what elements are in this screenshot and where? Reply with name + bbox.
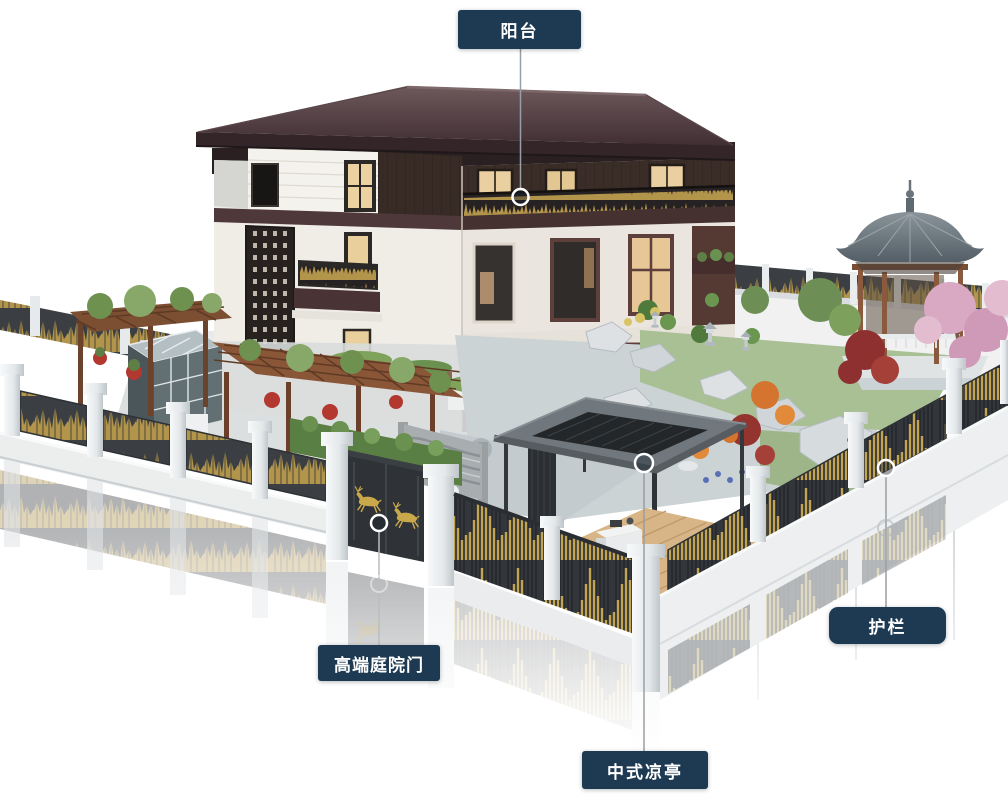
callout-label-pavilion-text: 中式凉亭 (607, 758, 683, 783)
callout-label-guardrail-text: 护栏 (869, 613, 907, 638)
callout-marker-gate[interactable] (371, 515, 387, 531)
hip-roof (196, 86, 735, 160)
dark-window (252, 164, 278, 206)
callout-label-balcony-text: 阳台 (501, 17, 539, 42)
lit-window-3f-left (344, 160, 376, 212)
callout-label-balcony[interactable]: 阳台 (458, 10, 581, 49)
callout-label-courtyard-gate-text: 高端庭院门 (334, 651, 424, 676)
callout-marker-guardrail[interactable] (878, 460, 894, 476)
lattice-screen (246, 226, 294, 354)
callout-marker-pavilion[interactable] (635, 454, 653, 472)
callout-label-guardrail[interactable]: 护栏 (829, 607, 946, 644)
callout-label-courtyard-gate[interactable]: 高端庭院门 (318, 645, 440, 681)
callout-label-pavilion[interactable]: 中式凉亭 (582, 751, 708, 789)
annotated-villa-rendering: 阳台 高端庭院门 中式凉亭 护栏 (0, 0, 1008, 800)
scene-illustration (0, 0, 1008, 800)
pavilion-roof (836, 180, 984, 274)
callout-marker-balcony[interactable] (513, 189, 529, 205)
corner-wood-panel (692, 226, 735, 332)
